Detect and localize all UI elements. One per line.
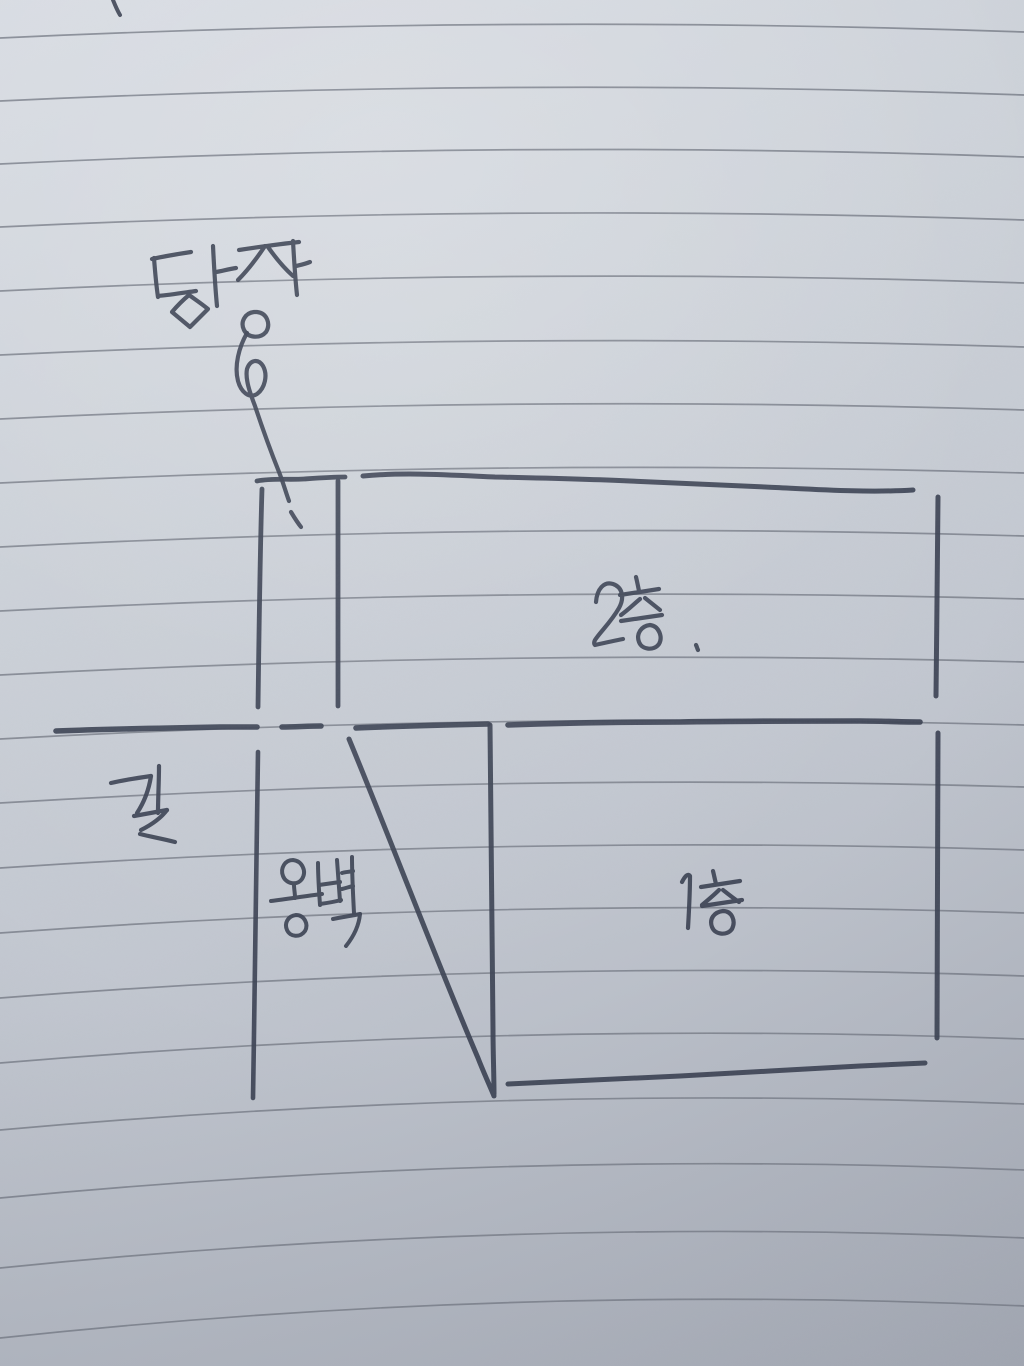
notebook-page: 담장 2층. 길 옹벽 1층 — [0, 0, 1024, 1366]
paper-grain-overlay — [0, 0, 1024, 1366]
sketch-canvas — [0, 0, 1024, 1366]
